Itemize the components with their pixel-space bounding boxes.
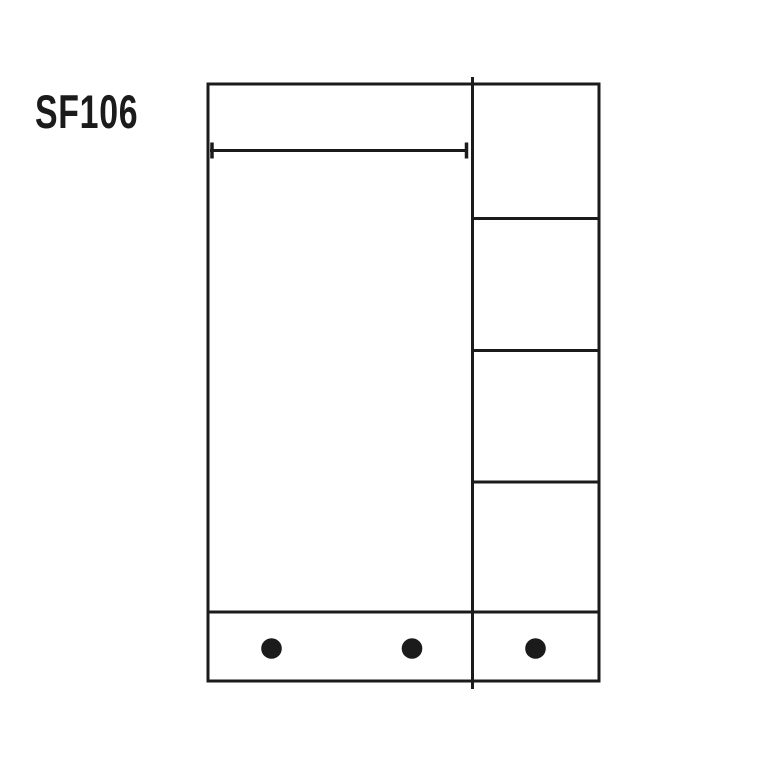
cabinet-linework xyxy=(208,77,599,689)
diagram-page: SF106 xyxy=(0,0,768,768)
base-dot-left xyxy=(261,638,282,659)
cabinet-outline xyxy=(208,84,599,681)
base-dots xyxy=(261,638,546,659)
base-dot-middle xyxy=(402,638,423,659)
dimension-line xyxy=(210,143,468,159)
cabinet-diagram xyxy=(0,0,768,768)
base-dot-right xyxy=(525,638,546,659)
